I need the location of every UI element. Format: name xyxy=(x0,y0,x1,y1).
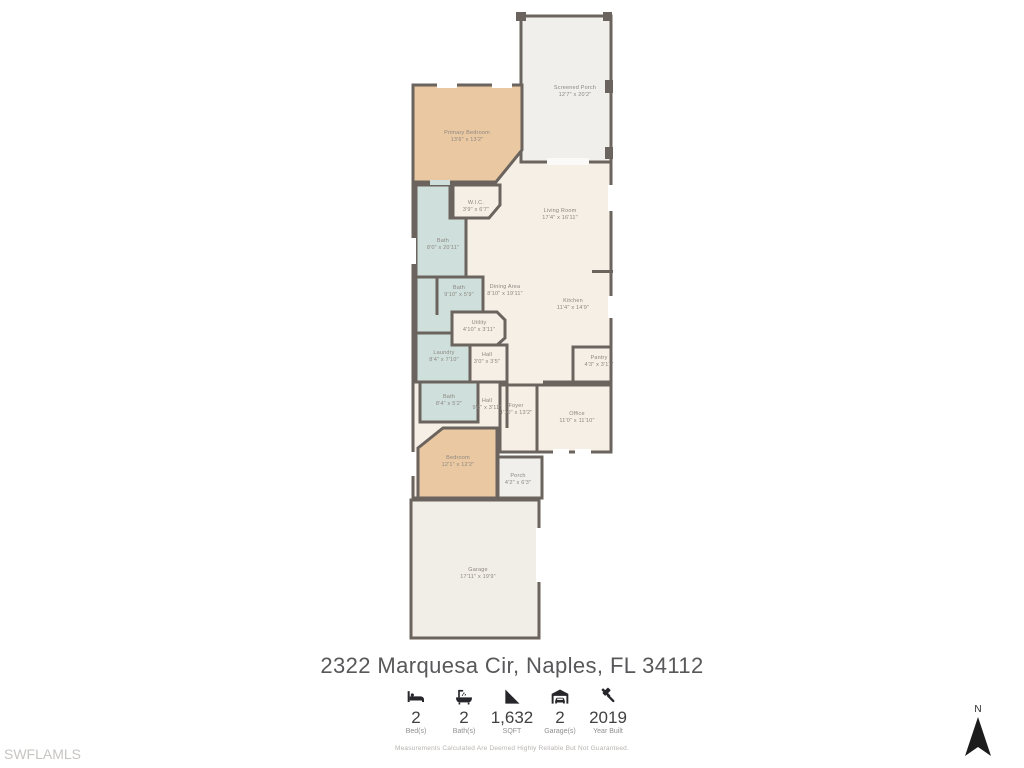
stat-value: 1,632 xyxy=(491,709,534,727)
room-label-hall-upper: Hall 3'0" x 3'5" xyxy=(474,352,500,366)
room-label-dining-area: Dining Area 8'10" x 19'11" xyxy=(487,284,523,298)
room-name: Garage xyxy=(460,567,496,574)
room-name: Primary Bedroom xyxy=(444,130,490,137)
room-label-bath-primary: Bath 8'0" x 20'11" xyxy=(427,238,459,252)
property-stats: 2 Bed(s) 2 Bath(s) xyxy=(392,687,632,735)
stat-garages: 2 Garage(s) xyxy=(536,687,584,735)
room-dims: 4'3" x 3'11" xyxy=(584,362,613,369)
room-dims: 8'10" x 19'11" xyxy=(487,291,523,298)
bath-icon xyxy=(454,687,474,707)
stat-label: Garage(s) xyxy=(544,728,576,735)
room-dims: 9'8" x 3'11" xyxy=(472,405,501,412)
stat-beds: 2 Bed(s) xyxy=(392,687,440,735)
room-name: Pantry xyxy=(584,355,613,362)
room-label-office: Office 11'0" x 11'10" xyxy=(559,411,594,425)
room-name: Office xyxy=(559,411,594,418)
room-dims: 11'0" x 11'10" xyxy=(559,418,594,425)
floorplan-flyer: Screened Porch 12'7" x 20'2" Primary Bed… xyxy=(0,0,1024,768)
room-dims: 3'9" x 6'7" xyxy=(463,207,489,214)
room-dims: 12'1" x 12'2" xyxy=(442,462,475,469)
room-name: Screened Porch xyxy=(554,85,596,92)
stat-baths: 2 Bath(s) xyxy=(440,687,488,735)
room-label-screened-porch: Screened Porch 12'7" x 20'2" xyxy=(554,85,596,99)
room-name: Bath xyxy=(436,394,462,401)
mls-watermark: SWFLAMLS xyxy=(4,746,81,762)
room-name: Porch xyxy=(505,473,531,480)
north-compass: N xyxy=(960,704,996,763)
room-name: Bedroom xyxy=(442,455,475,462)
bed-icon xyxy=(406,687,426,707)
room-dims: 8'4" x 5'2" xyxy=(436,401,462,408)
room-name: Dining Area xyxy=(487,284,523,291)
stat-label: Bath(s) xyxy=(453,728,476,735)
garage-icon xyxy=(550,687,570,707)
stat-label: Bed(s) xyxy=(406,728,427,735)
room-dims: 11'4" x 14'9" xyxy=(557,305,589,312)
room-name: Bath xyxy=(427,238,459,245)
room-name: Living Room xyxy=(542,208,578,215)
room-name: Hall xyxy=(472,398,501,405)
stat-value: 2 xyxy=(411,709,420,727)
room-name: Hall xyxy=(474,352,500,359)
stat-value: 2019 xyxy=(589,709,627,727)
room-label-hall-lower: Hall 9'8" x 3'11" xyxy=(472,398,501,412)
room-name: Laundry xyxy=(429,350,459,357)
room-label-primary-bedroom: Primary Bedroom 13'6" x 13'2" xyxy=(444,130,490,144)
room-name: Utility xyxy=(463,320,495,327)
room-dims: 8'0" x 20'11" xyxy=(427,245,459,252)
room-dims: 8'4" x 7'10" xyxy=(429,357,459,364)
north-arrow-icon xyxy=(960,716,996,758)
room-label-porch: Porch 4'2" x 6'3" xyxy=(505,473,531,487)
room-name: Foyer xyxy=(500,403,533,410)
room-label-wic: W.I.C. 3'9" x 6'7" xyxy=(463,200,489,214)
room-dims: 4'10" x 13'2" xyxy=(500,410,533,417)
room-dims: 13'6" x 13'2" xyxy=(444,137,490,144)
room-label-laundry: Laundry 8'4" x 7'10" xyxy=(429,350,459,364)
room-label-bath-3: Bath 8'4" x 5'2" xyxy=(436,394,462,408)
room-name: W.I.C. xyxy=(463,200,489,207)
compass-north-label: N xyxy=(960,704,996,715)
room-label-kitchen: Kitchen 11'4" x 14'9" xyxy=(557,298,589,312)
room-label-foyer: Foyer 4'10" x 13'2" xyxy=(500,403,533,417)
room-label-living-room: Living Room 17'4" x 16'11" xyxy=(542,208,578,222)
room-dims: 3'0" x 3'5" xyxy=(474,359,500,366)
ruler-icon xyxy=(502,687,522,707)
room-dims: 4'2" x 6'3" xyxy=(505,480,531,487)
room-label-pantry: Pantry 4'3" x 3'11" xyxy=(584,355,613,369)
room-name: Bath xyxy=(444,285,474,292)
room-label-utility: Utility 4'10" x 3'11" xyxy=(463,320,495,334)
stat-value: 2 xyxy=(555,709,564,727)
stat-label: SQFT xyxy=(503,728,522,735)
stat-label: Year Built xyxy=(593,728,623,735)
gavel-icon xyxy=(598,687,618,707)
room-dims: 17'11" x 19'9" xyxy=(460,574,496,581)
room-label-bedroom-2: Bedroom 12'1" x 12'2" xyxy=(442,455,475,469)
stat-sqft: 1,632 SQFT xyxy=(488,687,536,735)
room-label-garage: Garage 17'11" x 19'9" xyxy=(460,567,496,581)
room-dims: 9'10" x 5'9" xyxy=(444,292,474,299)
room-dims: 4'10" x 3'11" xyxy=(463,327,495,334)
room-dims: 17'4" x 16'11" xyxy=(542,215,578,222)
room-label-bath-2: Bath 9'10" x 5'9" xyxy=(444,285,474,299)
room-dims: 12'7" x 20'2" xyxy=(554,92,596,99)
stat-value: 2 xyxy=(459,709,468,727)
room-name: Kitchen xyxy=(557,298,589,305)
stat-year-built: 2019 Year Built xyxy=(584,687,632,735)
